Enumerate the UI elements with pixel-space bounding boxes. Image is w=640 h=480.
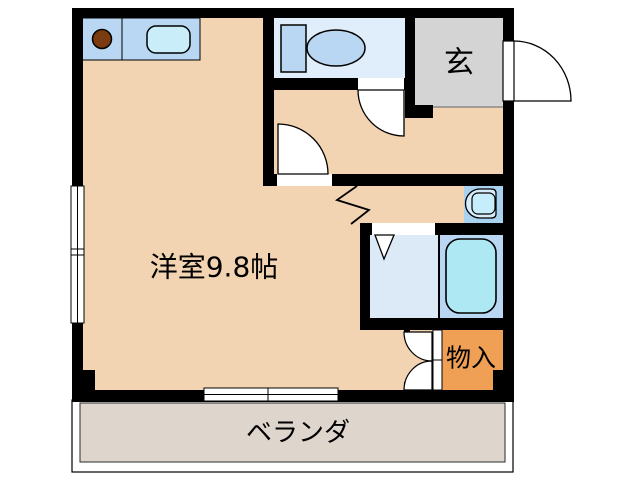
wall-southeast-corner: [493, 370, 514, 402]
toilet-room: [274, 18, 405, 78]
window-south: [204, 388, 338, 401]
veranda-area: ベランダ: [72, 400, 513, 472]
wall-washroom-west: [360, 223, 370, 330]
toilet-bowl-icon: [307, 30, 365, 66]
main-room-label: 洋室9.8帖: [150, 251, 279, 284]
washbasin-bowl-icon: [472, 193, 495, 214]
wall-entrance-stub: [405, 105, 433, 118]
kitchen-counter: [82, 18, 200, 60]
floor-plan-page: 玄 物入 ベランダ: [0, 0, 640, 480]
wall-west-upper: [72, 8, 83, 187]
entrance-area: 玄: [415, 18, 503, 107]
wall-washroom-south: [360, 318, 514, 330]
storage-label: 物入: [446, 344, 496, 373]
toilet-tank-icon: [281, 25, 306, 72]
wall-toilet-entrance: [405, 18, 415, 107]
entrance-door-leaf: [503, 41, 514, 101]
washroom-door-opening: [372, 223, 435, 235]
bath-block: [370, 235, 503, 318]
hall-door-opening: [277, 174, 332, 186]
entrance-door: [503, 41, 571, 101]
veranda-label: ベランダ: [246, 418, 350, 448]
floor-plan-svg: 玄 物入 ベランダ: [0, 0, 640, 480]
entrance-label: 玄: [444, 46, 474, 81]
washbasin-area: [464, 185, 503, 223]
wall-north: [72, 8, 514, 18]
stove-burner-icon: [93, 30, 112, 49]
window-west: [71, 186, 84, 323]
kitchen-sink-icon: [147, 26, 190, 53]
entrance-door-swing-arc: [514, 41, 571, 101]
toilet-door-opening: [358, 78, 404, 90]
bathtub-icon: [446, 239, 496, 313]
wall-mainroom-hall: [263, 18, 274, 186]
